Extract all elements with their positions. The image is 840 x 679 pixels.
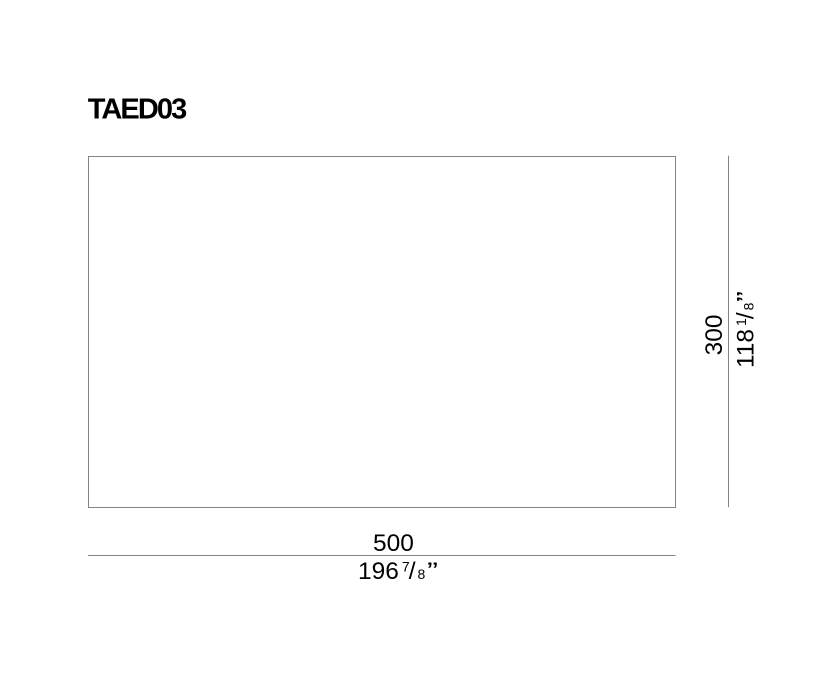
svg-text:TAED03: TAED03 (88, 94, 187, 126)
svg-text:”: ” (427, 558, 438, 585)
svg-text:500: 500 (373, 530, 414, 557)
svg-text:”: ” (732, 291, 759, 302)
svg-text:300: 300 (701, 314, 728, 355)
svg-text:1967/8: 1967/8 (358, 558, 426, 585)
